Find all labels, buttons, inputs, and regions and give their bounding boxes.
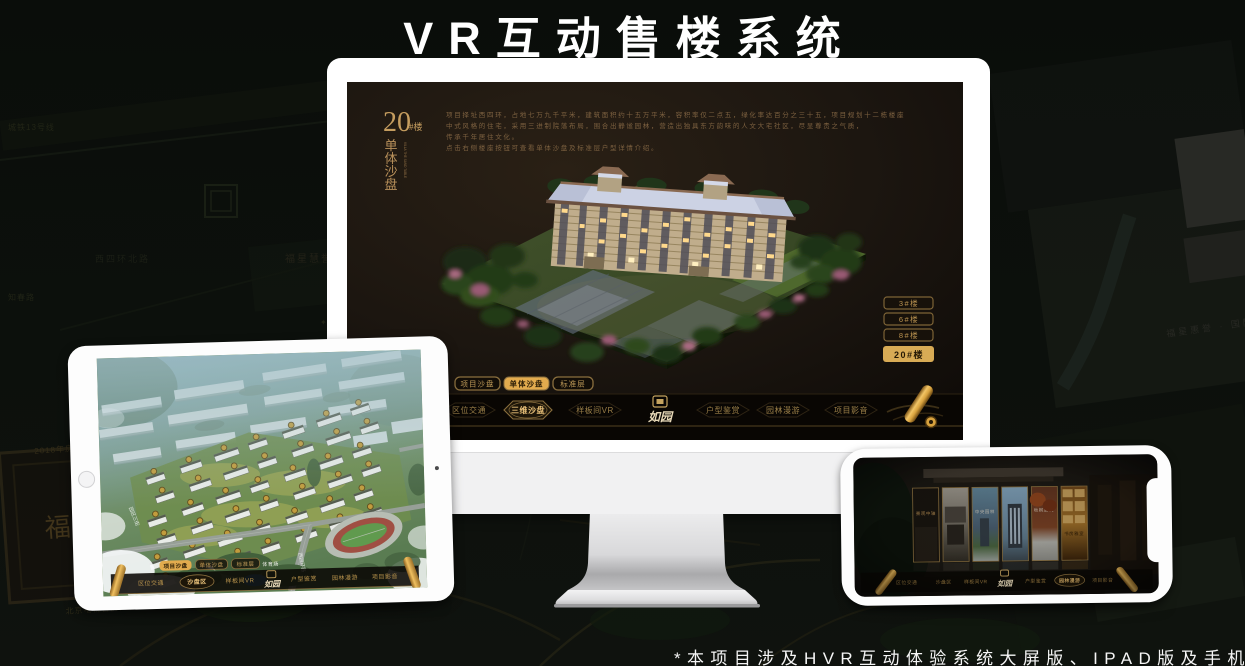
svg-text:福星慧誉: 福星慧誉 <box>285 252 333 265</box>
svg-text:传承千年居住文化。: 传承千年居住文化。 <box>446 132 520 141</box>
svg-text:标准层: 标准层 <box>560 379 586 389</box>
svg-text:西四环北路: 西四环北路 <box>95 253 150 264</box>
svg-text:8#楼: 8#楼 <box>899 330 919 340</box>
svg-text:园林漫游: 园林漫游 <box>766 405 800 415</box>
svg-text:体育场: 体育场 <box>262 561 279 568</box>
svg-text:3#楼: 3#楼 <box>899 298 919 308</box>
svg-text:盘: 盘 <box>384 177 397 192</box>
svg-text:项目沙盘: 项目沙盘 <box>461 379 495 389</box>
svg-text:知春路: 知春路 <box>8 292 35 302</box>
svg-text:单体沙盘: 单体沙盘 <box>510 379 544 389</box>
svg-text:20: 20 <box>383 107 411 138</box>
svg-text:项目影音: 项目影音 <box>834 405 868 415</box>
svg-text:VILLA THE SAND TABLE: VILLA THE SAND TABLE <box>403 142 407 178</box>
svg-text:6#楼: 6#楼 <box>899 314 919 324</box>
svg-text:项目择址西四环，占地七万九千平米，建筑面积约十五万平米，容积: 项目择址西四环，占地七万九千平米，建筑面积约十五万平米，容积率仅二点五，绿化率达… <box>446 110 905 119</box>
svg-text:中式风格的住宅，采用三进制院落布局，围合出静谧园林，营造出独: 中式风格的住宅，采用三进制院落布局，围合出静谧园林，营造出独具东方韵味的人文大宅… <box>446 121 864 130</box>
svg-text:20#楼: 20#楼 <box>894 349 924 360</box>
svg-text:区位交通: 区位交通 <box>452 405 486 415</box>
svg-text:样板间VR: 样板间VR <box>576 405 614 415</box>
svg-text:点击右侧楼座按钮可查看单体沙盘及标准层户型详情介绍。: 点击右侧楼座按钮可查看单体沙盘及标准层户型详情介绍。 <box>446 143 659 152</box>
svg-text:如园: 如园 <box>648 410 674 424</box>
svg-text:城铁13号线: 城铁13号线 <box>8 122 55 132</box>
svg-text:三维沙盘: 三维沙盘 <box>511 405 545 415</box>
svg-text:如园: 如园 <box>264 579 282 588</box>
svg-text:#楼: #楼 <box>409 121 423 132</box>
svg-text:户型鉴赏: 户型鉴赏 <box>706 405 740 415</box>
